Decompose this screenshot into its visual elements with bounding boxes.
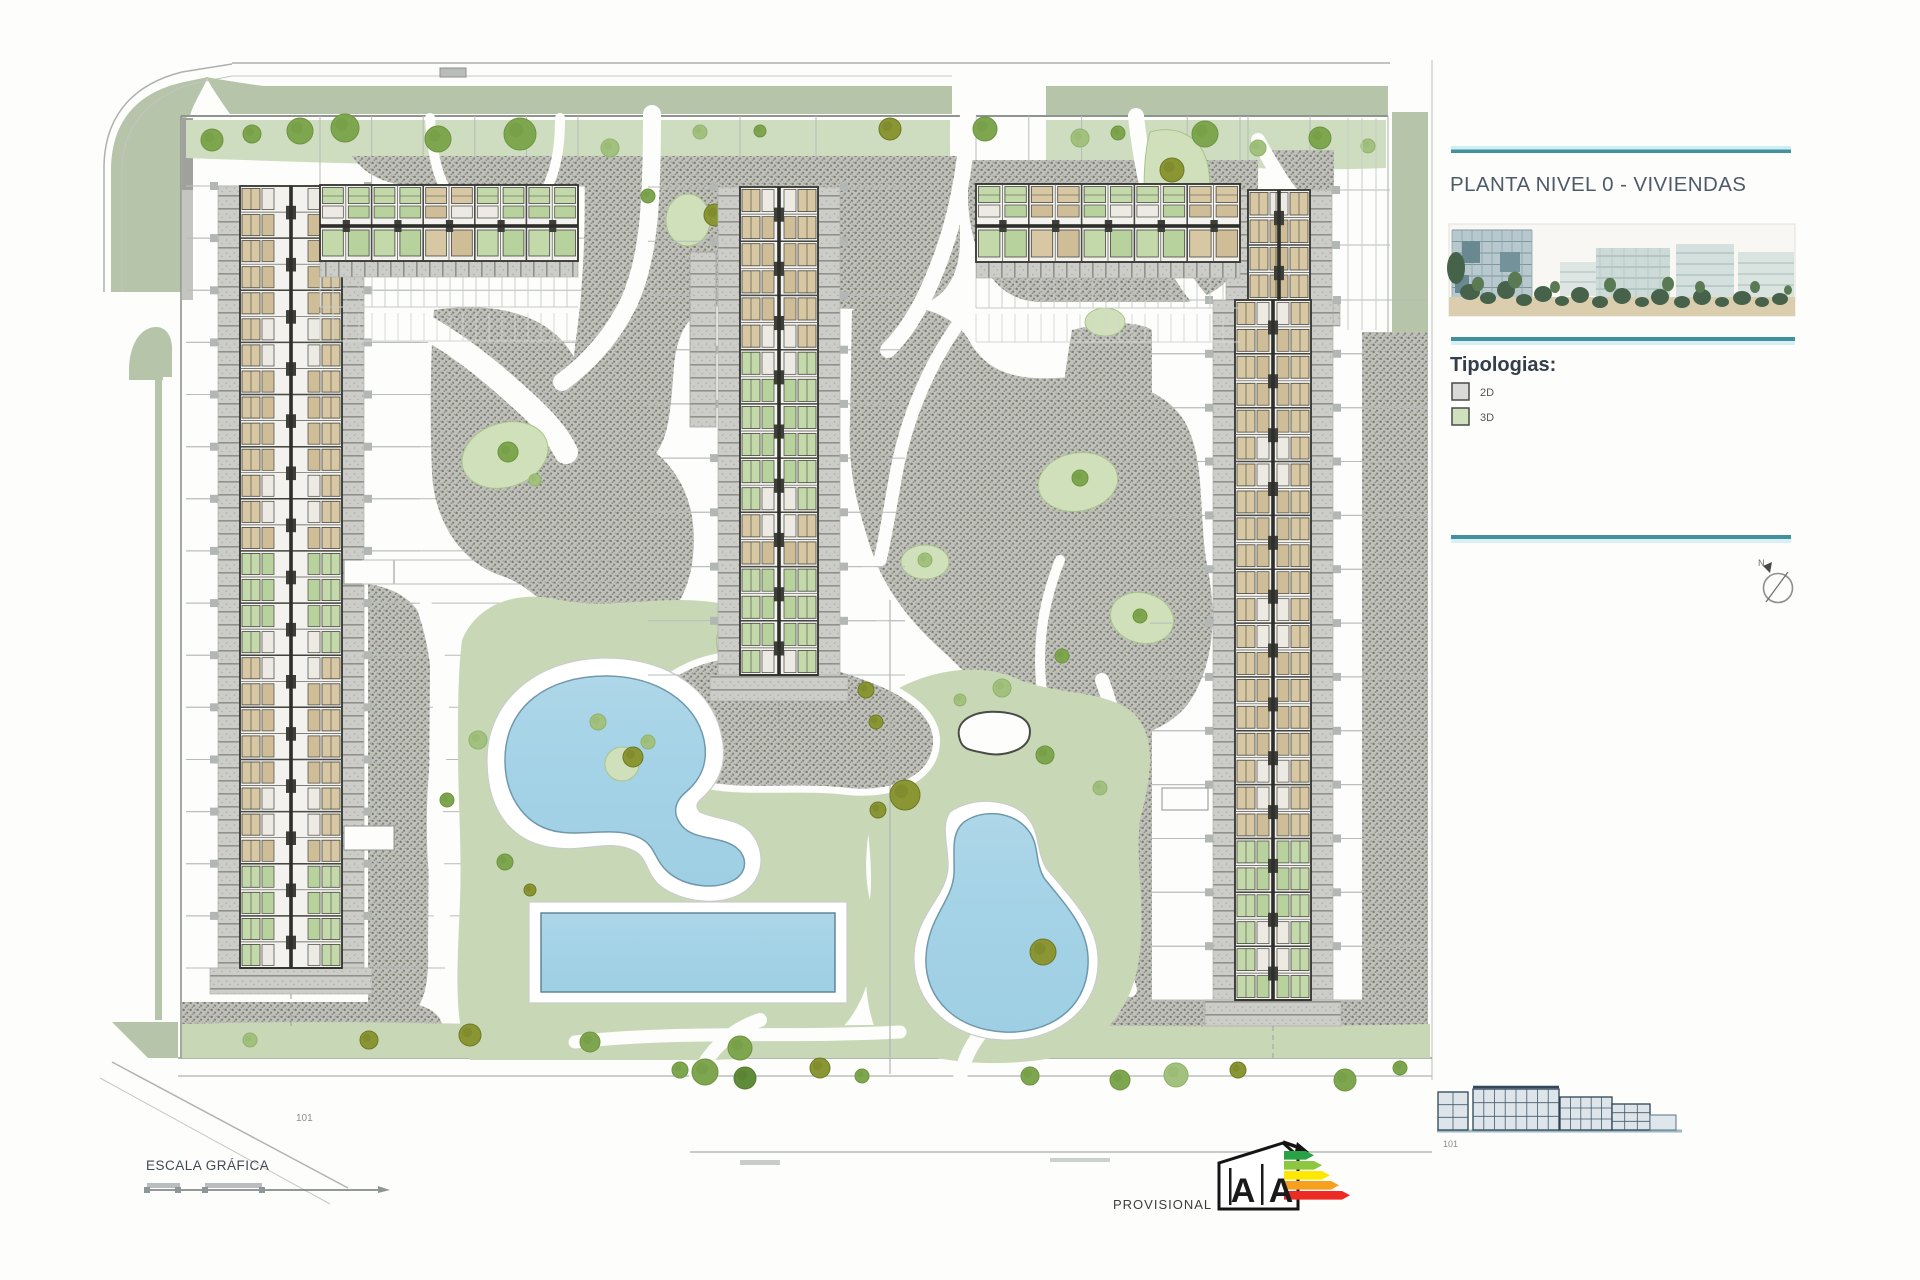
svg-text:2D: 2D <box>1480 387 1494 399</box>
svg-text:A: A <box>1231 1172 1256 1210</box>
svg-text:Tipologias:: Tipologias: <box>1450 354 1556 376</box>
svg-text:ESCALA GRÁFICA: ESCALA GRÁFICA <box>146 1158 269 1173</box>
svg-text:PROVISIONAL: PROVISIONAL <box>1113 1197 1212 1212</box>
svg-text:101: 101 <box>1443 1139 1458 1149</box>
svg-text:N: N <box>1758 558 1765 568</box>
svg-text:PLANTA NIVEL 0 - VIVIENDAS: PLANTA NIVEL 0 - VIVIENDAS <box>1450 173 1746 196</box>
svg-text:3D: 3D <box>1480 412 1494 424</box>
svg-text:101: 101 <box>296 1113 313 1124</box>
svg-text:A: A <box>1269 1172 1294 1210</box>
